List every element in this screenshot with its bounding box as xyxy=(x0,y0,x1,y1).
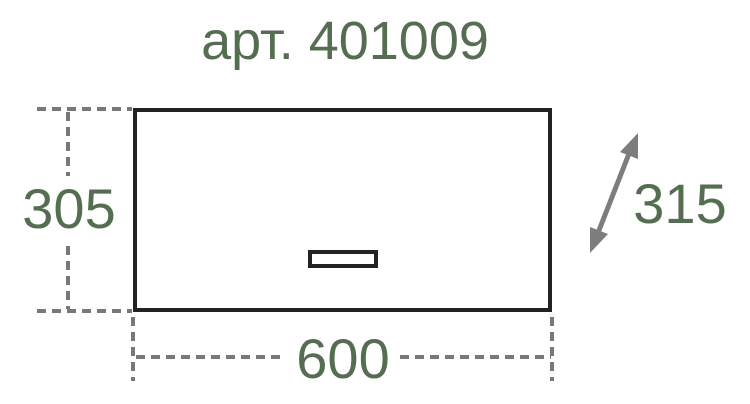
article-number-title: арт. 401009 xyxy=(170,14,520,68)
product-dimension-diagram: арт. 401009 305 600 315 xyxy=(0,0,750,404)
height-dimension-label: 305 xyxy=(19,181,119,237)
width-extension-line-left xyxy=(131,317,135,381)
width-dimension-line-right xyxy=(400,355,551,359)
cabinet-outline xyxy=(133,108,552,312)
height-dimension-line-lower xyxy=(66,246,70,309)
depth-dimension-label: 315 xyxy=(630,176,730,232)
height-extension-line-bottom xyxy=(37,309,132,313)
width-dimension-label: 600 xyxy=(293,331,393,387)
width-dimension-line-left xyxy=(136,355,286,359)
height-dimension-line-upper xyxy=(66,112,70,176)
cabinet-handle xyxy=(308,250,378,268)
height-extension-line-top xyxy=(37,107,132,111)
width-extension-line-right xyxy=(550,317,554,381)
